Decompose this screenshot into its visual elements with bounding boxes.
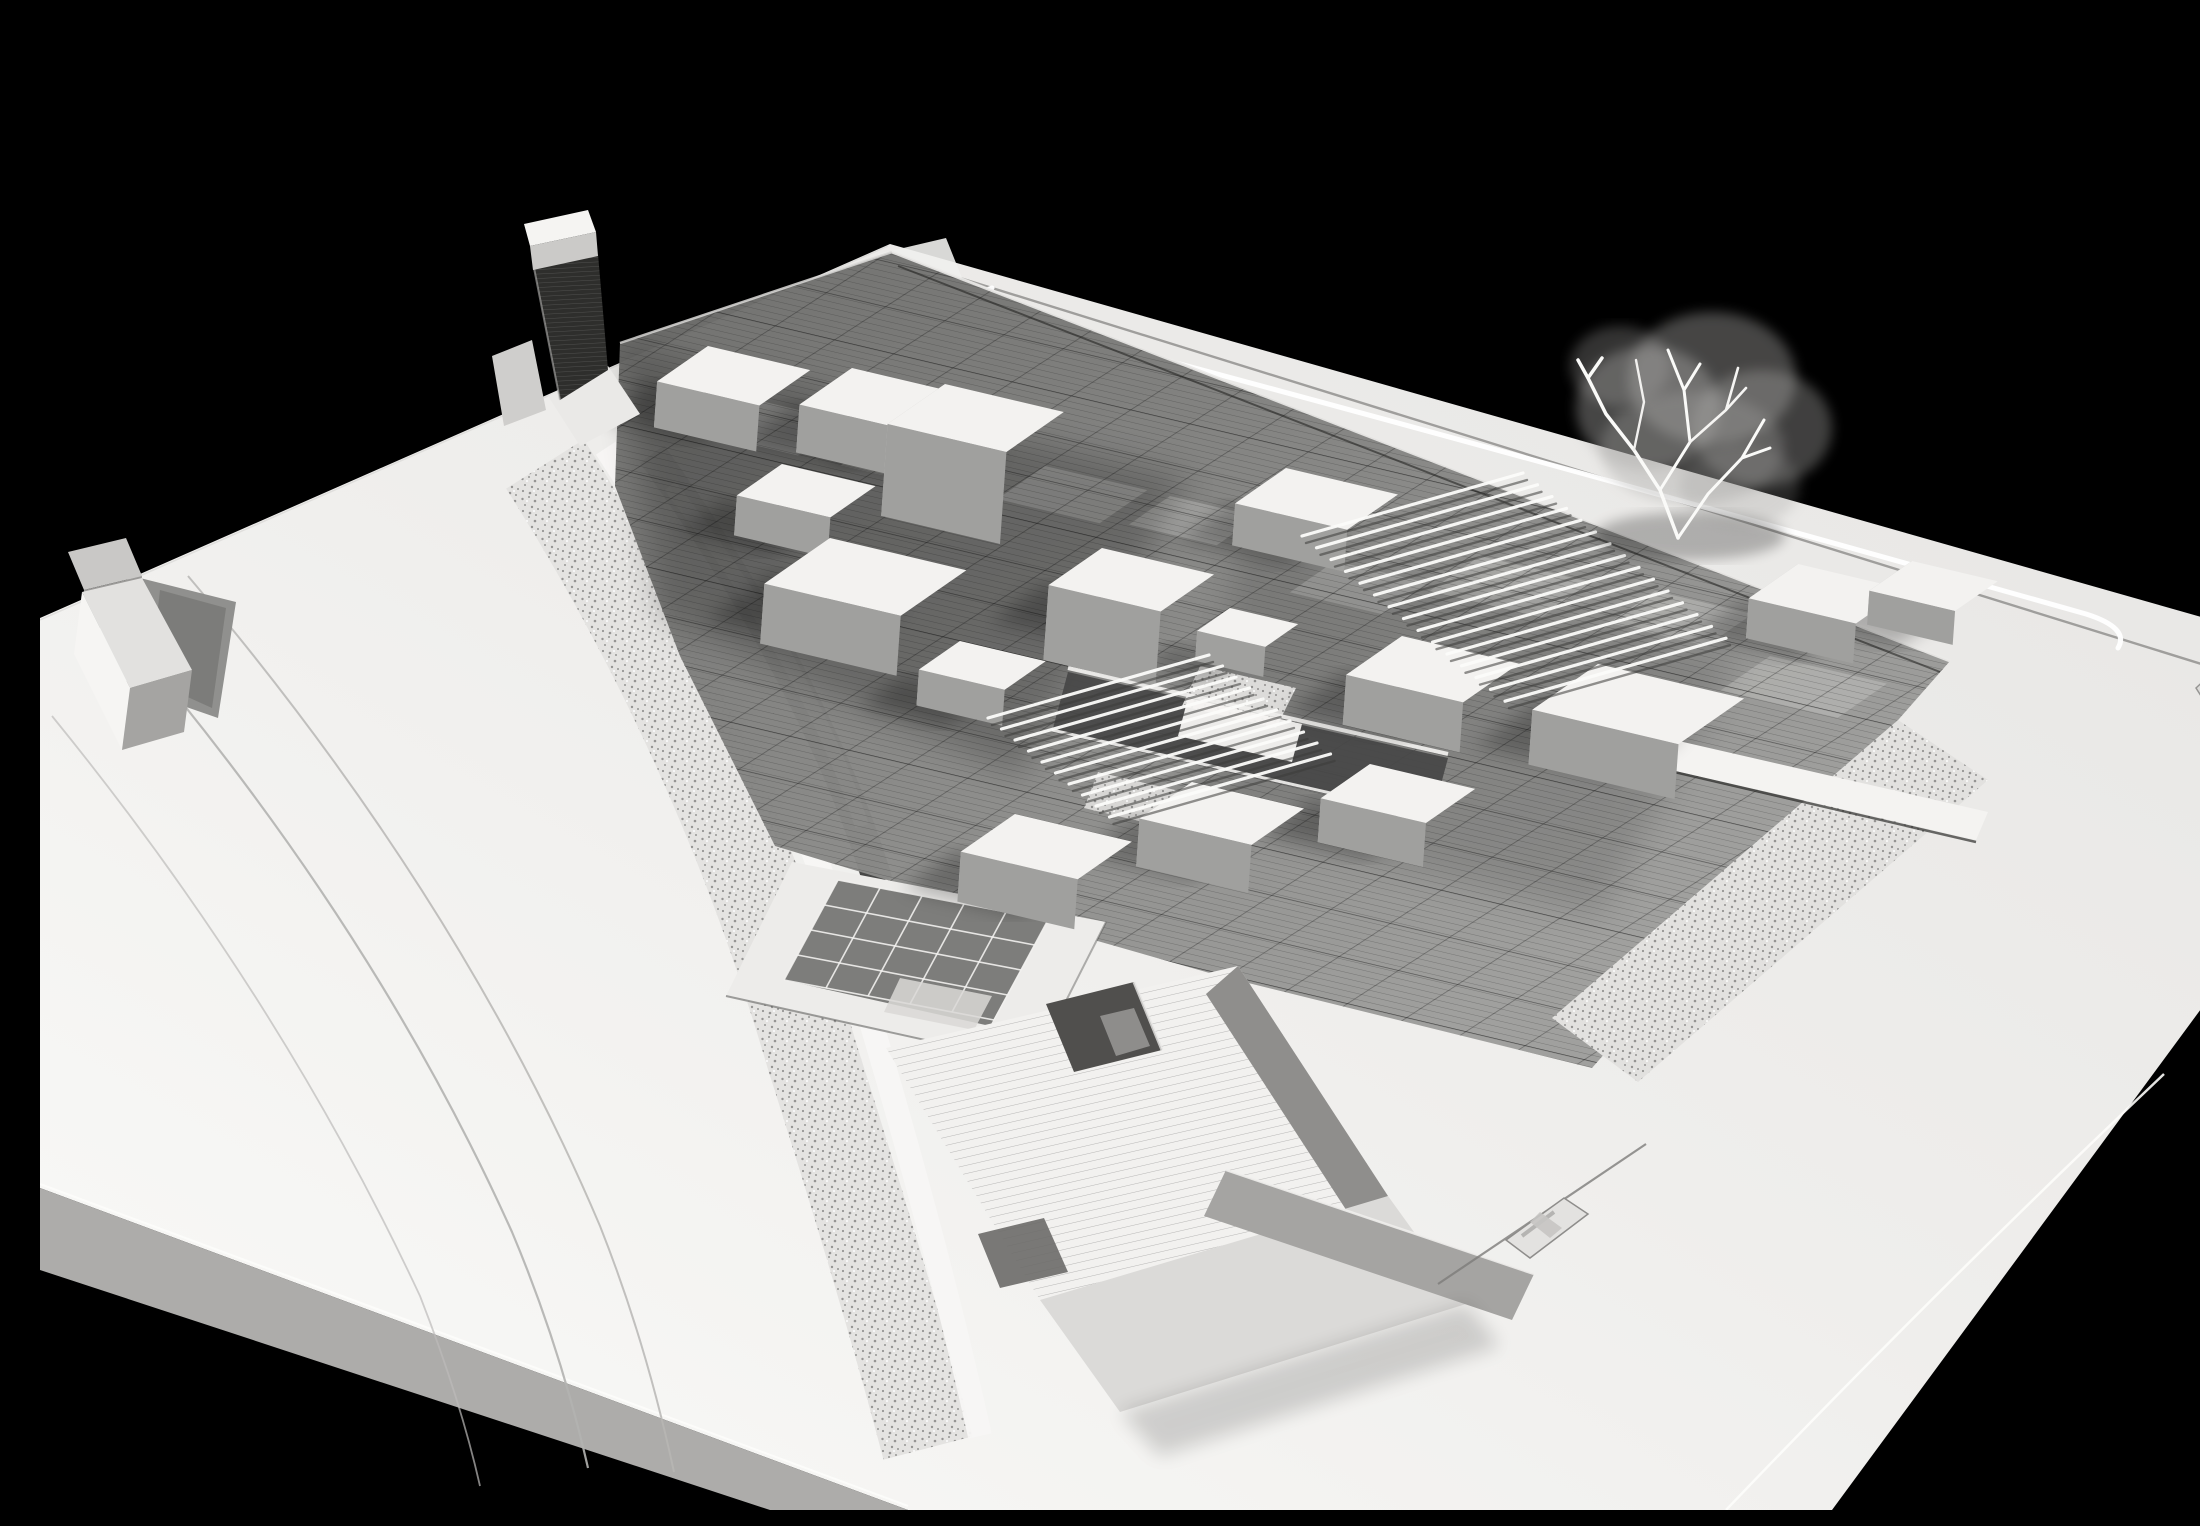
scene-root — [40, 16, 2200, 1510]
tree-canopy-5 — [1680, 444, 1800, 528]
model-photo-svg — [40, 16, 2200, 1510]
architectural-model-photograph — [40, 16, 2200, 1510]
tree-canopy-6 — [1570, 326, 1670, 406]
